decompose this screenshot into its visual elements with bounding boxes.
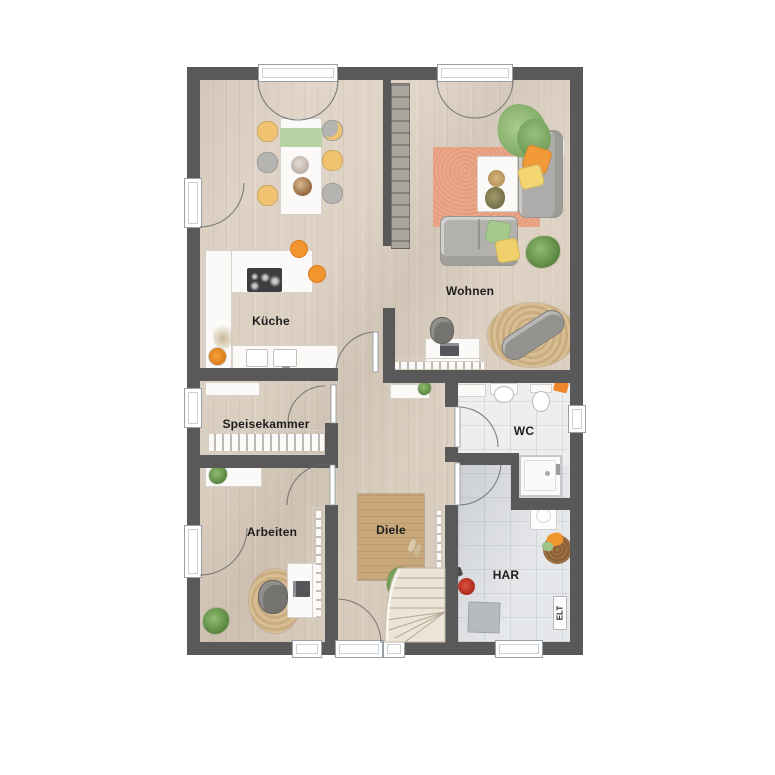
room-label-elt: ELT: [556, 606, 565, 621]
room-label-speisekammer: Speisekammer: [222, 417, 309, 431]
stairs: [385, 568, 445, 642]
floor-plan-image: Küche Wohnen Speisekammer Arbeiten Diele…: [0, 0, 775, 775]
door-leaves: [330, 332, 460, 505]
room-label-wc: WC: [514, 424, 534, 438]
floor-plan: Küche Wohnen Speisekammer Arbeiten Diele…: [187, 67, 583, 655]
room-label-wohnen: Wohnen: [446, 284, 494, 298]
stairs-and-door-swings: [187, 67, 583, 655]
room-label-arbeiten: Arbeiten: [247, 525, 297, 539]
door-swing-arcs: [200, 80, 513, 643]
room-label-har: HAR: [493, 568, 520, 582]
room-label-diele: Diele: [376, 523, 406, 537]
room-label-kueche: Küche: [252, 314, 290, 328]
